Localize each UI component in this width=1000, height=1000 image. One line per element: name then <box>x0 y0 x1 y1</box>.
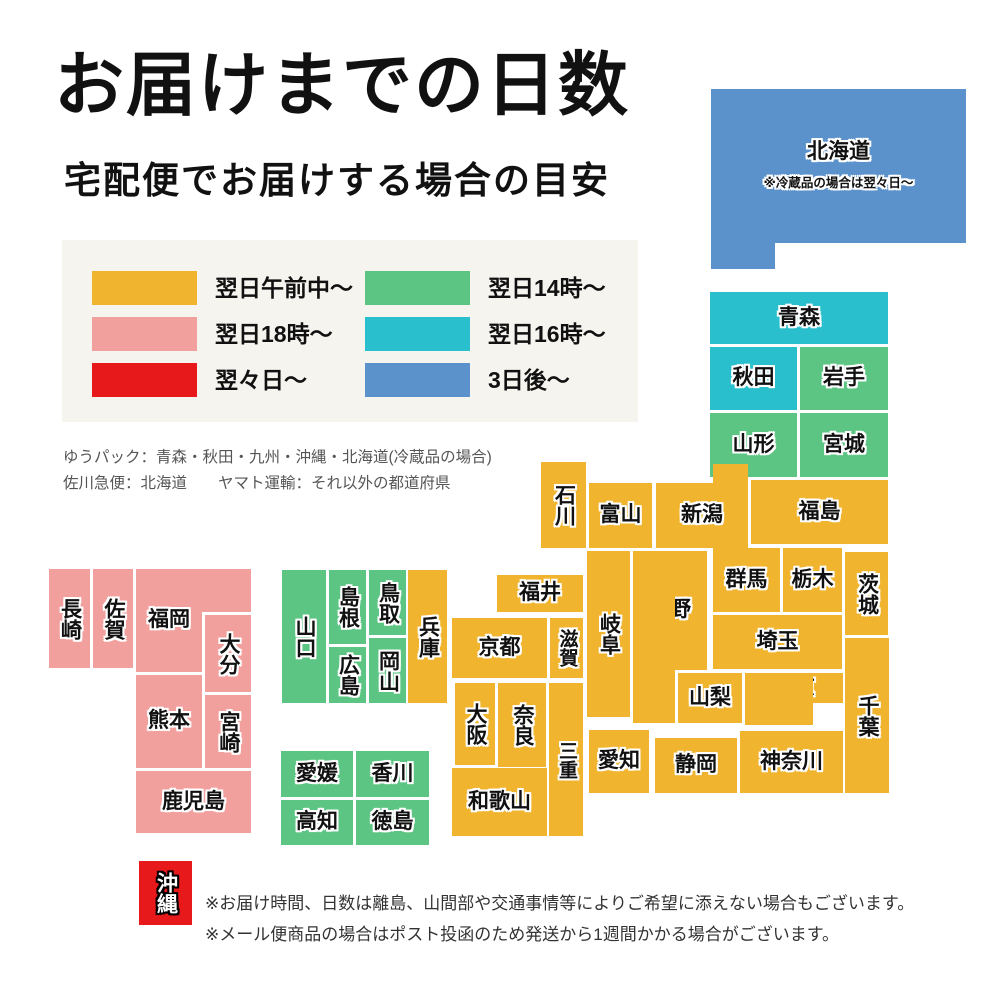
prefecture-label: 山口 <box>293 616 315 658</box>
prefecture-label: 岩手 <box>823 367 865 389</box>
prefecture-block: 千葉 <box>845 638 889 793</box>
prefecture-block: 茨城 <box>845 552 888 635</box>
prefecture-label: 愛知 <box>598 750 640 772</box>
prefecture-label: 愛媛 <box>296 763 338 785</box>
footer-note-line: ※お届け時間、日数は離島、山間部や交通事情等によりご希望に添えない場合もございま… <box>205 888 995 919</box>
prefecture-label: 三重 <box>556 741 576 779</box>
prefecture-block: 広島 <box>329 647 366 703</box>
prefecture-label: 滋賀 <box>557 629 577 667</box>
prefecture-label: 福島 <box>799 501 841 523</box>
prefecture-block: 新潟 <box>656 483 748 548</box>
prefecture-label: 熊本 <box>148 710 190 732</box>
prefecture-label: 石川 <box>552 484 574 526</box>
prefecture-label: 福岡 <box>148 609 190 631</box>
prefecture-block: 愛知 <box>589 730 649 793</box>
prefecture-label: 鹿児島 <box>162 791 225 813</box>
prefecture-block <box>633 551 675 723</box>
prefecture-label: 山梨 <box>689 687 731 709</box>
prefecture-label: 広島 <box>336 654 358 696</box>
prefecture-block: 静岡 <box>655 738 737 793</box>
prefecture-block: 香川 <box>356 751 429 797</box>
prefecture-label: 佐賀 <box>102 598 124 640</box>
prefecture-label: 山形 <box>733 434 775 456</box>
prefecture-block <box>713 464 748 485</box>
footer-note-line: ※メール便商品の場合はポスト投函のため発送から1週間かかる場合がございます。 <box>205 919 995 950</box>
prefecture-label: 奈良 <box>511 704 533 746</box>
prefecture-label: 島根 <box>336 586 358 628</box>
prefecture-label: 沖縄 <box>154 872 176 914</box>
prefecture-block <box>711 241 775 269</box>
prefecture-block: 山梨 <box>678 673 742 723</box>
prefecture-label: 宮城 <box>823 434 865 456</box>
prefecture-label: 茨城 <box>855 573 877 615</box>
prefecture-block: 宮城 <box>800 413 888 477</box>
prefecture-block: 山口 <box>282 570 326 703</box>
prefecture-block: 岩手 <box>800 347 888 410</box>
footer-notes: ※お届け時間、日数は離島、山間部や交通事情等によりご希望に添えない場合もございま… <box>205 888 995 950</box>
prefecture-block: 福島 <box>751 480 888 544</box>
prefecture-label: 兵庫 <box>416 616 438 658</box>
prefecture-block: 島根 <box>329 570 366 644</box>
prefecture-block: 熊本 <box>136 675 202 768</box>
prefecture-block: 宮崎 <box>205 695 251 768</box>
prefecture-block: 徳島 <box>356 800 429 845</box>
prefecture-block: 富山 <box>589 483 652 548</box>
prefecture-label: 宮崎 <box>217 711 239 753</box>
prefecture-label: 埼玉 <box>757 631 799 653</box>
prefecture-block: 鳥取 <box>369 570 406 635</box>
prefecture-label: 北海道 <box>807 141 870 163</box>
prefecture-label: 香川 <box>372 763 414 785</box>
prefecture-block: 岡山 <box>369 638 406 703</box>
japan-delivery-map: 北海道※冷蔵品の場合は翌々日〜青森秋田岩手山形宮城新潟富山石川福井福島群馬栃木茨… <box>0 0 1000 1000</box>
prefecture-block: 京都 <box>452 618 547 678</box>
prefecture-block: 沖縄 <box>139 861 192 925</box>
prefecture-block: 群馬 <box>713 548 780 612</box>
prefecture-block: 青森 <box>710 292 888 344</box>
prefecture-label: 鳥取 <box>376 582 398 624</box>
prefecture-block: 石川 <box>541 462 586 548</box>
prefecture-label: 秋田 <box>733 367 775 389</box>
prefecture-note: ※冷蔵品の場合は翌々日〜 <box>764 172 914 191</box>
prefecture-label: 新潟 <box>681 504 723 526</box>
prefecture-block: 大分 <box>205 615 251 692</box>
prefecture-label: 大阪 <box>464 703 486 745</box>
prefecture-block: 滋賀 <box>550 618 583 678</box>
prefecture-label: 和歌山 <box>468 791 531 813</box>
prefecture-block: 和歌山 <box>452 768 547 836</box>
prefecture-block: 神奈川 <box>740 731 843 793</box>
prefecture-block: 大阪 <box>455 683 495 765</box>
prefecture-label: 富山 <box>600 504 642 526</box>
prefecture-block: 福井 <box>497 575 583 612</box>
prefecture-block: 岐阜 <box>587 551 630 717</box>
prefecture-label: 岐阜 <box>597 613 619 655</box>
prefecture-label: 大分 <box>217 633 239 675</box>
prefecture-block: 奈良 <box>498 683 546 767</box>
prefecture-block: 長崎 <box>49 569 90 668</box>
prefecture-label: 高知 <box>296 811 338 833</box>
prefecture-block: 北海道※冷蔵品の場合は翌々日〜 <box>711 89 966 243</box>
prefecture-label: 静岡 <box>675 754 717 776</box>
prefecture-label: 京都 <box>479 637 521 659</box>
prefecture-label: 千葉 <box>856 695 878 737</box>
prefecture-block: 鹿児島 <box>136 771 251 833</box>
prefecture-block: 高知 <box>281 800 353 845</box>
prefecture-label: 徳島 <box>372 811 414 833</box>
prefecture-label: 岡山 <box>376 650 398 692</box>
prefecture-block: 福岡 <box>136 569 202 672</box>
prefecture-label: 福井 <box>519 582 561 604</box>
prefecture-label: 長崎 <box>58 598 80 640</box>
prefecture-block: 兵庫 <box>408 570 447 703</box>
prefecture-block: 愛媛 <box>281 751 353 797</box>
prefecture-block <box>745 673 813 725</box>
prefecture-block: 埼玉 <box>713 615 842 669</box>
prefecture-label: 栃木 <box>792 569 834 591</box>
prefecture-block: 三重 <box>549 683 583 836</box>
prefecture-label: 青森 <box>778 307 820 329</box>
prefecture-block: 栃木 <box>783 548 842 612</box>
prefecture-block: 秋田 <box>710 347 797 410</box>
prefecture-label: 群馬 <box>726 569 768 591</box>
prefecture-block: 佐賀 <box>93 569 133 668</box>
prefecture-label: 神奈川 <box>760 751 823 773</box>
